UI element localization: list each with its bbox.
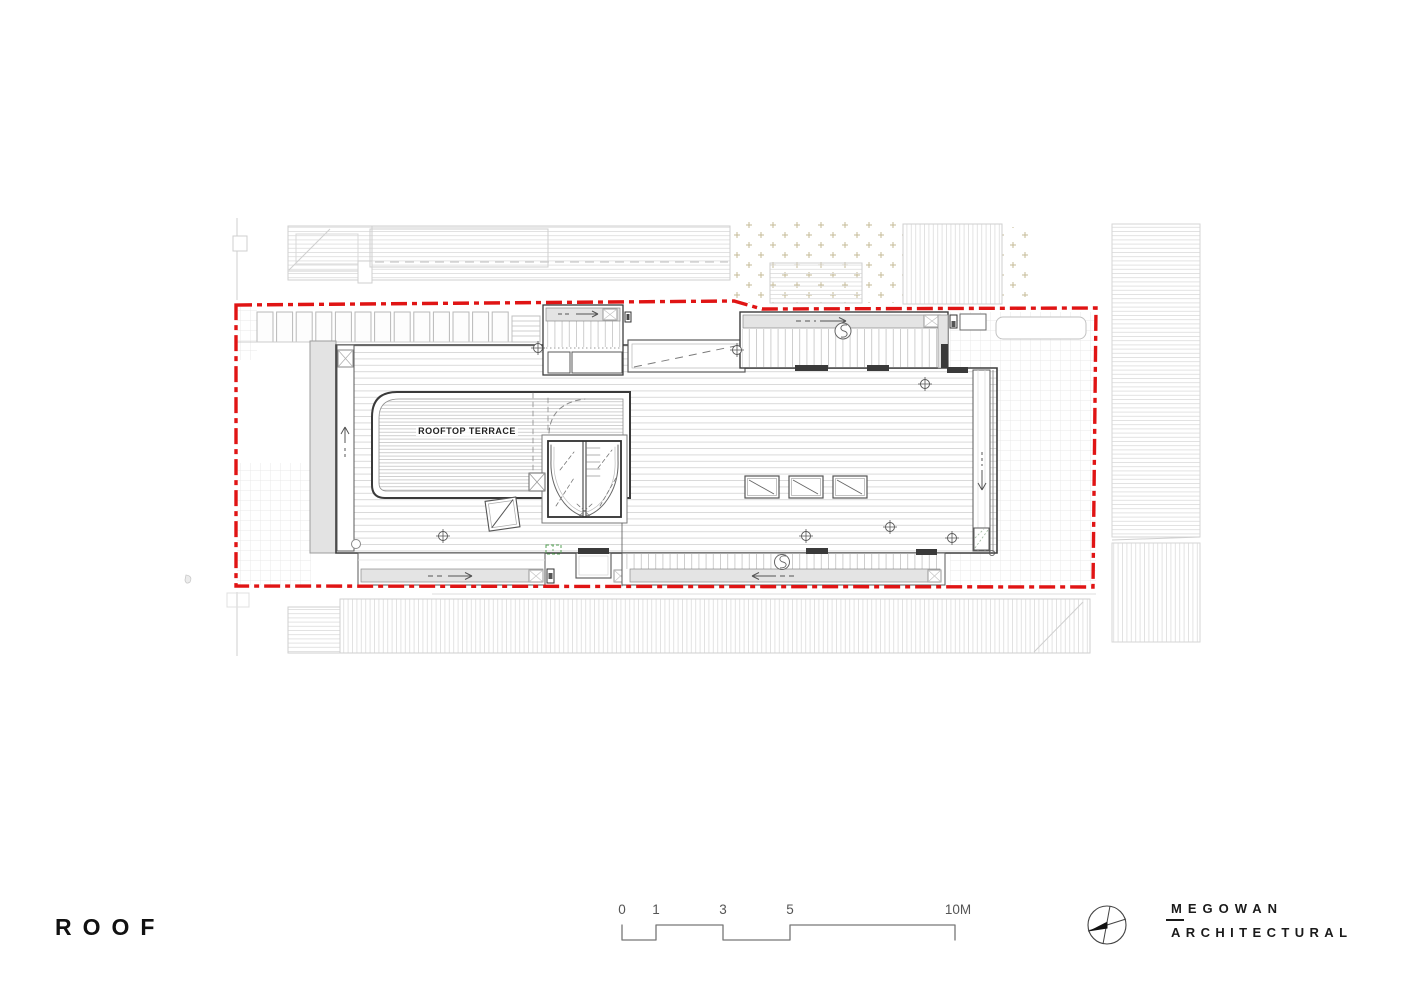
terrace-label: ROOFTOP TERRACE — [408, 426, 526, 436]
scale-label-5: 5 — [786, 902, 794, 917]
terrace-label-text: ROOFTOP TERRACE — [416, 426, 518, 436]
cursor-artifact — [185, 575, 191, 583]
pergola-battens — [237, 312, 540, 342]
skylight-rotated — [485, 497, 520, 531]
s-drain-icon — [775, 555, 790, 570]
roof-plan-drawing — [0, 0, 1414, 1000]
scale-label-1: 1 — [652, 902, 660, 917]
north-arrow-icon — [1088, 906, 1126, 944]
neighbour-roof-south — [340, 599, 1090, 653]
neighbour-roof-northeast — [903, 224, 1002, 304]
west-box-gutter — [337, 345, 354, 551]
neighbour-roof-southeast — [1112, 543, 1200, 642]
sheet-title: ROOF — [55, 914, 165, 941]
brand-line1: MEGOWAN — [1171, 901, 1283, 916]
top-stair-enclosure — [543, 305, 631, 375]
s-drain-icon — [835, 323, 851, 339]
skylight-long-dashed — [628, 340, 745, 372]
roof-hatch — [576, 553, 611, 578]
drawing-sheet: ROOFTOP TERRACE ROOF 0 1 3 5 10M MEGOWAN… — [0, 0, 1414, 1000]
brand-underline — [1166, 919, 1184, 921]
neighbour-roof-east — [1112, 224, 1200, 537]
planter-box — [996, 317, 1086, 339]
scale-bar — [622, 925, 955, 941]
skylight-diagonal-icon — [745, 476, 779, 498]
scale-label-3: 3 — [719, 902, 727, 917]
access-steps — [512, 316, 540, 342]
west-parapet-wall — [310, 341, 336, 553]
skylight-diagonal-icon — [833, 476, 867, 498]
skylight-diagonal-icon — [789, 476, 823, 498]
scale-label-10m: 10M — [945, 902, 971, 917]
brand-line2: ARCHITECTURAL — [1171, 925, 1352, 940]
scale-label-0: 0 — [618, 902, 626, 917]
